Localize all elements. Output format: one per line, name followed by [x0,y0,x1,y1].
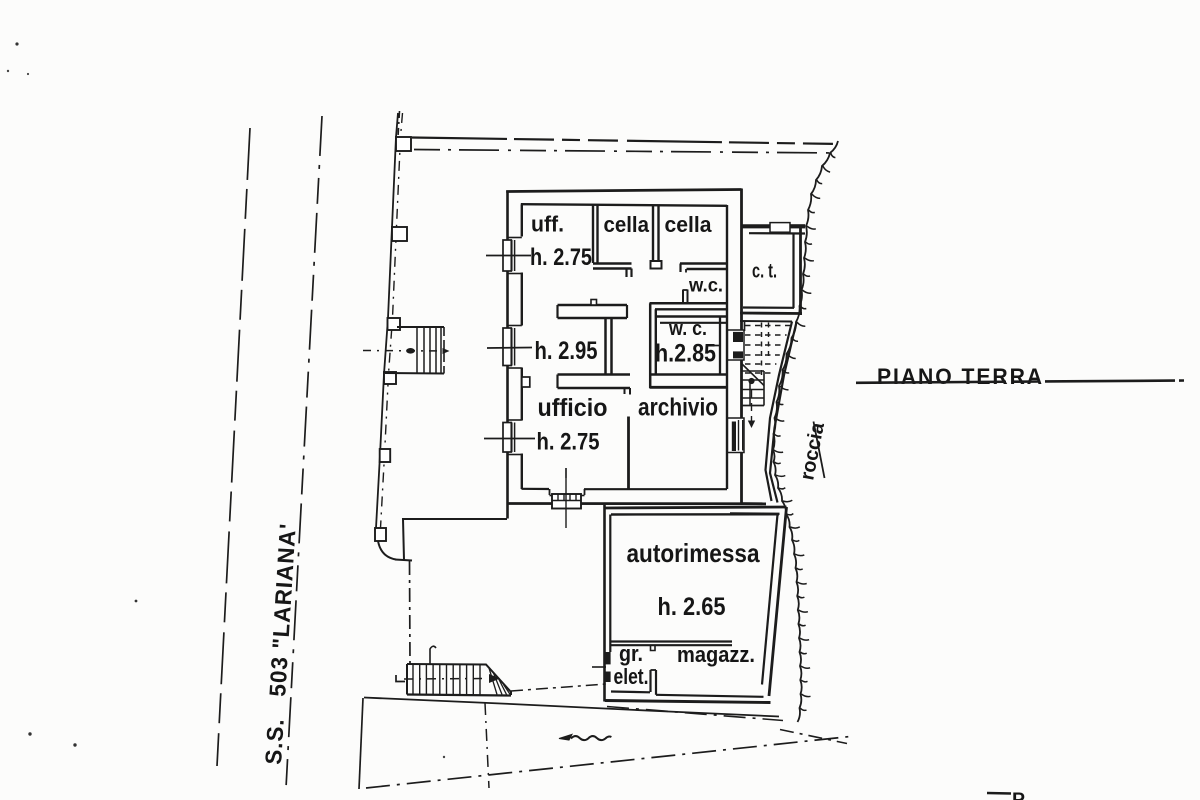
svg-text:h.2.85: h.2.85 [655,340,716,368]
svg-text:PIANO TERRA: PIANO TERRA [877,364,1044,389]
svg-text:P: P [1012,790,1025,800]
svg-text:uff.: uff. [531,212,564,237]
svg-text:c. t.: c. t. [752,261,777,283]
svg-text:autorimessa: autorimessa [627,538,760,568]
svg-text:cella: cella [604,212,650,237]
svg-text:h. 2.95: h. 2.95 [535,337,598,365]
svg-text:h. 2.75: h. 2.75 [537,429,600,456]
svg-text:h. 2.75: h. 2.75 [530,244,592,271]
svg-text:archivio: archivio [638,394,718,422]
svg-text:w.c.: w.c. [688,276,723,297]
svg-text:cella: cella [665,212,713,237]
svg-text:ufficio: ufficio [538,394,608,422]
svg-text:gr.: gr. [619,641,643,666]
svg-text:elet.: elet. [614,664,649,689]
svg-text:w. c.: w. c. [668,318,707,340]
svg-text:h. 2.65: h. 2.65 [658,593,726,621]
svg-text:magazz.: magazz. [677,642,755,667]
